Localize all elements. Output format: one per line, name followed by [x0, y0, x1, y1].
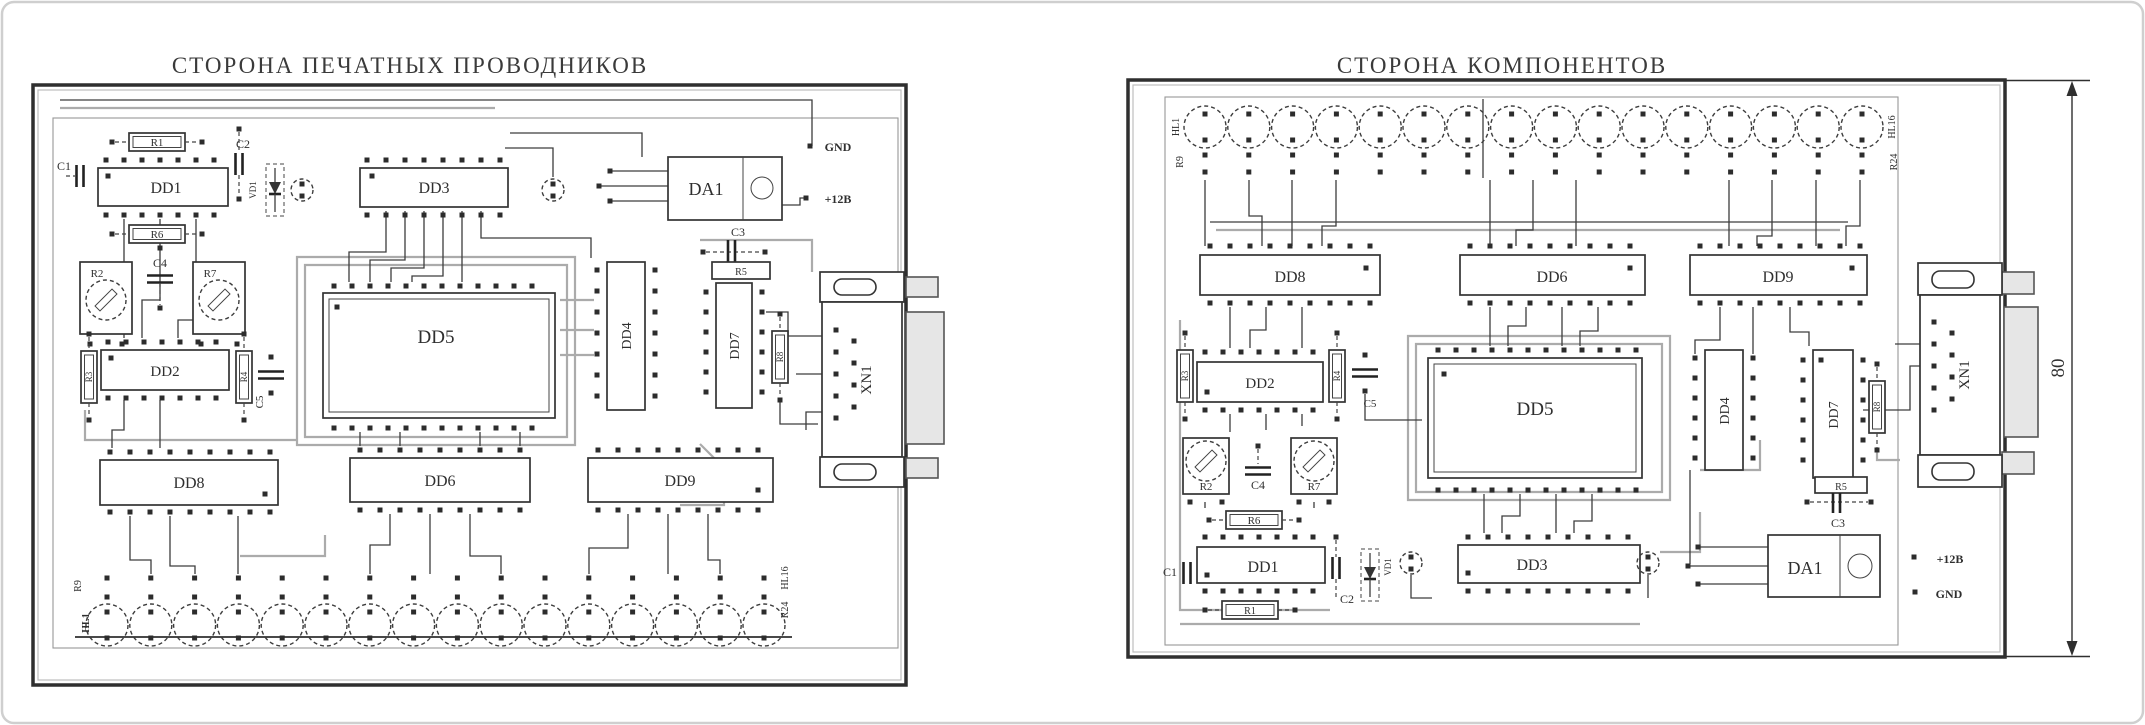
- drawing-canvas: СТОРОНА ПЕЧАТНЫХ ПРОВОДНИКОВ R1 D: [0, 0, 2145, 725]
- pcb-assembly-drawing: СТОРОНА ПЕЧАТНЫХ ПРОВОДНИКОВ R1 D: [0, 0, 2145, 725]
- label-c5: C5: [1364, 398, 1377, 410]
- label-xn1: XN1: [859, 365, 875, 394]
- label-r6: R6: [1248, 515, 1261, 527]
- label-r2: R2: [1200, 481, 1213, 493]
- label-r3: R3: [84, 371, 94, 382]
- label-da1: DA1: [1788, 558, 1823, 578]
- right-board-title: СТОРОНА КОМПОНЕНТОВ: [1337, 53, 1667, 78]
- label-dd7: DD7: [1827, 401, 1842, 428]
- label-c5: C5: [254, 395, 266, 408]
- label-c4: C4: [1251, 478, 1265, 492]
- label-dd5: DD5: [418, 327, 455, 348]
- label-dd8: DD8: [173, 475, 204, 492]
- label-dd6: DD6: [1536, 269, 1567, 286]
- label-dd3: DD3: [418, 180, 449, 197]
- trimmer-r7: [193, 262, 245, 334]
- ic-dd5: [323, 293, 555, 418]
- label-r1: R1: [151, 137, 164, 149]
- left-board-title: СТОРОНА ПЕЧАТНЫХ ПРОВОДНИКОВ: [172, 53, 648, 78]
- label-dd7: DD7: [728, 332, 743, 359]
- label-dd2: DD2: [150, 364, 179, 380]
- label-r8: R8: [1872, 401, 1882, 412]
- label-gnd: GND: [1936, 587, 1963, 601]
- label-c4: C4: [153, 256, 167, 270]
- label-r5: R5: [735, 267, 747, 278]
- label-c1: C1: [1163, 565, 1177, 579]
- label-r1: R1: [1244, 606, 1256, 617]
- label-dd1: DD1: [1247, 559, 1278, 576]
- label-c2: C2: [1340, 592, 1354, 606]
- label-dd4: DD4: [1718, 397, 1733, 424]
- label-dd2: DD2: [1245, 376, 1274, 392]
- label-r3: R3: [1180, 370, 1190, 381]
- label-dd8: DD8: [1274, 269, 1305, 286]
- label-r4: R4: [1332, 370, 1342, 381]
- label-hl1: HL1: [1171, 118, 1182, 136]
- dimension-80-label: 80: [2048, 359, 2069, 378]
- ic-dd3: [1458, 545, 1640, 583]
- label-hl1: HL1: [81, 613, 92, 632]
- label-plus12: +12В: [1937, 552, 1964, 566]
- label-dd5: DD5: [1517, 399, 1554, 420]
- label-r9: R9: [1175, 156, 1186, 168]
- label-r2: R2: [91, 268, 104, 280]
- label-dd3: DD3: [1516, 557, 1547, 574]
- label-r7: R7: [1308, 481, 1321, 493]
- label-r5: R5: [1835, 482, 1847, 493]
- label-gnd: GND: [825, 140, 852, 154]
- label-c3: C3: [731, 225, 745, 239]
- trimmer-r2: [80, 262, 132, 334]
- label-r4: R4: [239, 371, 249, 382]
- label-dd1: DD1: [150, 180, 181, 197]
- label-dd4: DD4: [620, 322, 635, 349]
- label-vd1: VD1: [1383, 558, 1393, 576]
- label-c2: C2: [236, 137, 250, 151]
- label-dd9: DD9: [664, 473, 695, 490]
- label-vd1: VD1: [248, 181, 258, 199]
- label-dd9: DD9: [1762, 269, 1793, 286]
- label-r8: R8: [775, 351, 785, 362]
- label-r9: R9: [73, 580, 84, 592]
- label-r7: R7: [204, 268, 217, 280]
- label-r24: R24: [1889, 154, 1900, 171]
- label-hl16: HL16: [1887, 115, 1898, 138]
- label-hl16: HL16: [780, 566, 791, 589]
- label-plus12: +12В: [825, 192, 852, 206]
- label-r6: R6: [151, 229, 164, 241]
- label-c3: C3: [1831, 516, 1845, 530]
- label-da1: DA1: [689, 179, 724, 199]
- label-xn1: XN1: [1957, 360, 1973, 389]
- label-r24: R24: [780, 602, 791, 619]
- label-c1: C1: [57, 159, 71, 173]
- label-dd6: DD6: [424, 473, 455, 490]
